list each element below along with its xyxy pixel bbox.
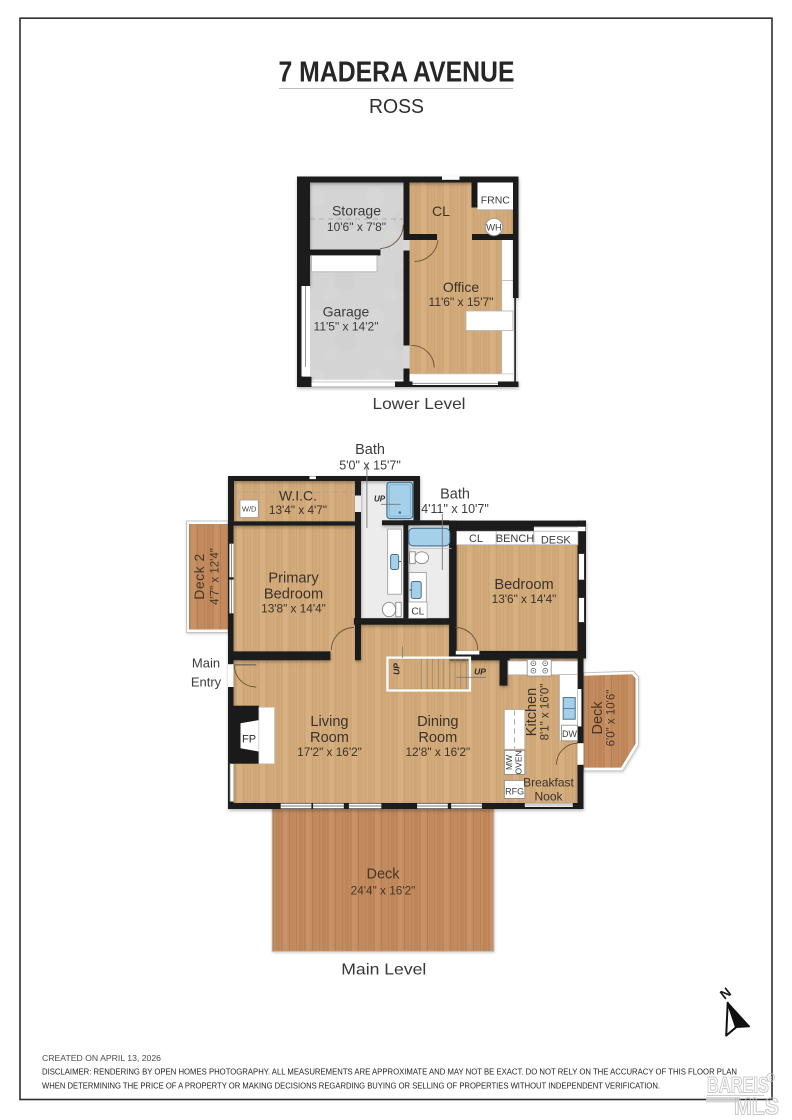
svg-text:UP: UP [392,663,402,675]
svg-text:DESK: DESK [541,534,572,546]
svg-text:ROSS: ROSS [369,96,424,118]
svg-text:DISCLAIMER: RENDERING BY OPEN: DISCLAIMER: RENDERING BY OPEN HOMES PHOT… [42,1067,737,1077]
svg-text:CL: CL [411,607,424,618]
svg-text:Deck: Deck [366,867,400,883]
svg-text:MLS: MLS [734,1094,779,1120]
svg-text:8'1" x 16'0": 8'1" x 16'0" [540,684,552,741]
svg-text:Lower Level: Lower Level [373,396,466,413]
svg-text:Nook: Nook [534,790,563,804]
svg-text:CL: CL [469,533,483,545]
svg-text:5'0" x 15'7": 5'0" x 15'7" [339,459,401,473]
svg-text:11'5" x 14'2": 11'5" x 14'2" [314,320,379,334]
svg-text:UP: UP [474,667,486,677]
svg-text:FP: FP [242,734,256,746]
svg-text:6'0" x 10'6": 6'0" x 10'6" [606,690,618,747]
svg-text:12'8" x 16'2": 12'8" x 16'2" [405,745,470,759]
svg-text:Room: Room [418,730,457,746]
svg-text:CREATED ON APRIL 13, 2026: CREATED ON APRIL 13, 2026 [42,1054,161,1063]
svg-text:Entry: Entry [191,675,222,690]
svg-text:Room: Room [310,730,349,746]
svg-text:WH: WH [486,223,502,234]
svg-text:4'7" x 12'4": 4'7" x 12'4" [210,548,222,605]
svg-text:Storage: Storage [332,203,381,219]
svg-text:CL: CL [432,203,450,219]
svg-text:10'6" x 7'8": 10'6" x 7'8" [327,220,386,234]
svg-text:Deck 2: Deck 2 [191,553,207,600]
svg-text:W.I.C.: W.I.C. [279,488,317,504]
svg-text:13'4" x 4'7": 13'4" x 4'7" [269,503,327,517]
svg-text:Bath: Bath [355,442,385,458]
svg-text:13'8" x 14'4": 13'8" x 14'4" [261,601,326,615]
svg-text:Garage: Garage [323,304,370,320]
svg-text:OVEN: OVEN [513,750,523,774]
svg-text:11'6" x 15'7": 11'6" x 15'7" [429,295,494,309]
svg-text:WHEN DETERMINING THE PRICE OF: WHEN DETERMINING THE PRICE OF A PROPERTY… [42,1081,660,1091]
svg-text:Deck: Deck [590,701,606,735]
svg-text:N: N [717,985,734,1003]
svg-text:W/D: W/D [242,505,257,514]
svg-text:Breakfast: Breakfast [523,776,574,790]
svg-text:Main: Main [192,656,220,671]
svg-text:Main Level: Main Level [341,962,426,979]
svg-text:UP: UP [374,495,386,504]
svg-text:RFG: RFG [505,787,524,797]
svg-text:Living: Living [310,714,348,730]
svg-text:DW: DW [562,729,577,739]
svg-text:24'4" x 16'2": 24'4" x 16'2" [351,884,416,898]
svg-text:4'11" x 10'7": 4'11" x 10'7" [421,502,489,516]
svg-text:17'2" x 16'2": 17'2" x 16'2" [297,745,362,759]
svg-text:Bedroom: Bedroom [264,587,323,603]
svg-text:7 MADERA AVENUE: 7 MADERA AVENUE [279,57,515,89]
svg-text:Dining: Dining [417,714,458,730]
svg-text:Kitchen: Kitchen [524,688,540,736]
svg-text:FRNC: FRNC [481,195,511,207]
svg-text:R: R [769,1076,773,1082]
svg-text:Bedroom: Bedroom [494,577,553,593]
svg-text:BENCH: BENCH [496,533,535,545]
svg-text:Office: Office [443,279,480,295]
svg-text:Bath: Bath [440,487,470,503]
svg-text:Primary: Primary [268,570,319,586]
svg-text:13'6" x 14'4": 13'6" x 14'4" [492,592,557,606]
